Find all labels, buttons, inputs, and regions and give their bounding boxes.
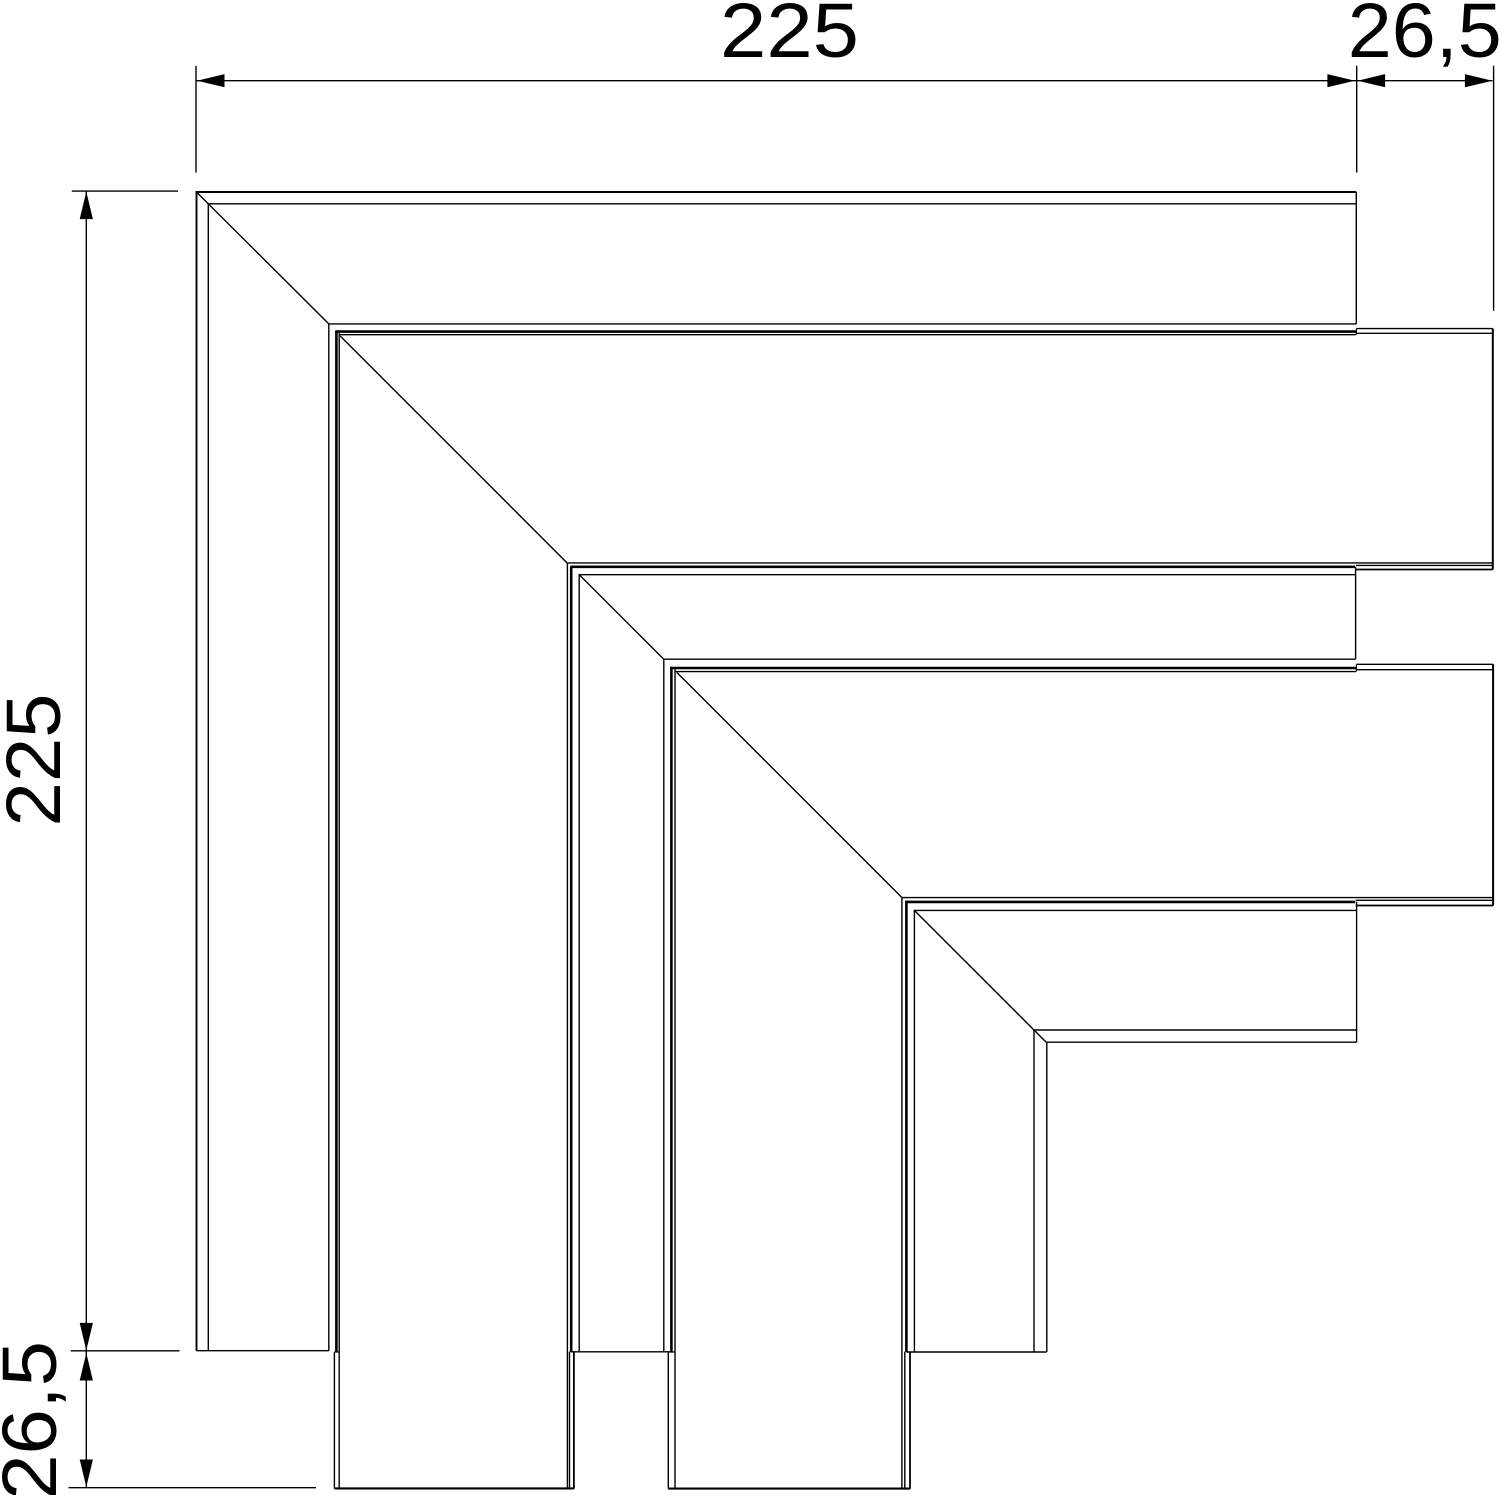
svg-text:26,5: 26,5	[0, 1341, 73, 1495]
svg-text:225: 225	[720, 0, 859, 74]
svg-text:225: 225	[0, 694, 77, 827]
svg-text:26,5: 26,5	[1348, 0, 1500, 74]
